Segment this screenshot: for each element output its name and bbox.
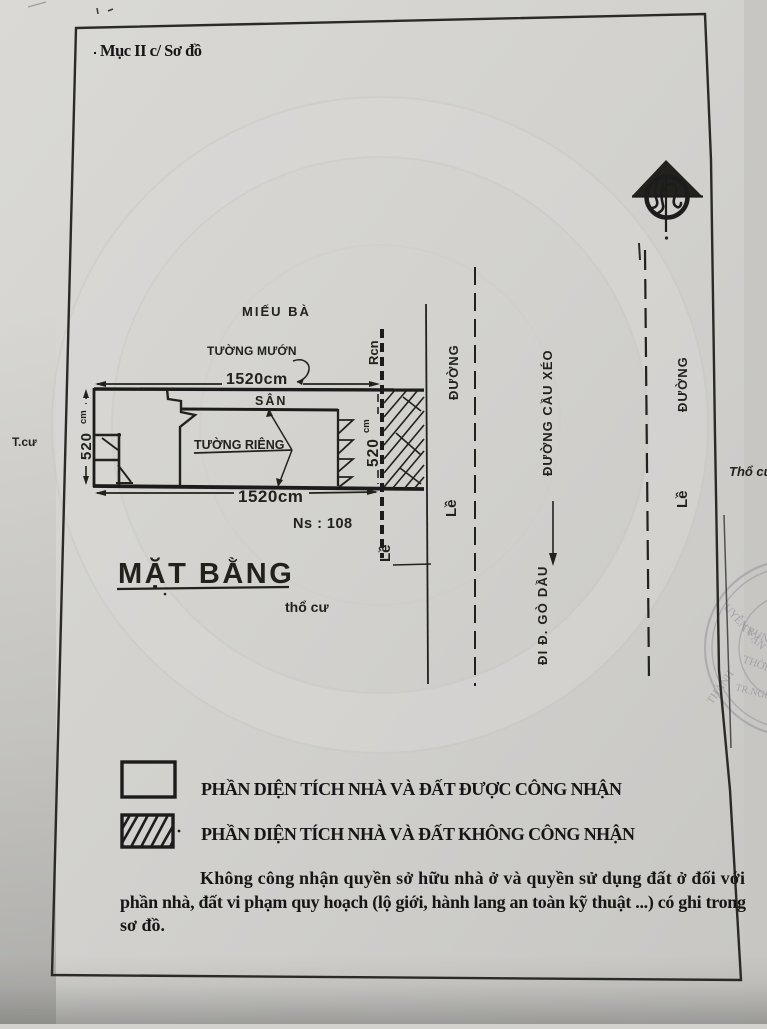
svg-text:Lề: Lề <box>674 490 691 508</box>
svg-text:sơ đồ.: sơ đồ. <box>120 915 165 935</box>
svg-text:Lề: Lề <box>443 499 460 517</box>
svg-text:ĐƯỜNG: ĐƯỜNG <box>675 356 690 412</box>
svg-text:ĐƯỜNG: ĐƯỜNG <box>446 344 461 400</box>
svg-text:1520cm: 1520cm <box>226 371 288 388</box>
svg-text:MIẾU BÀ: MIẾU BÀ <box>242 304 311 319</box>
svg-text:Rcn: Rcn <box>366 340 381 365</box>
svg-text:520: 520 <box>365 438 382 467</box>
svg-text:PHẦN DIỆN TÍCH NHÀ VÀ ĐẤT ĐƯỢC: PHẦN DIỆN TÍCH NHÀ VÀ ĐẤT ĐƯỢC CÔNG NHẬN <box>201 778 622 799</box>
svg-text:ĐƯỜNG CẦU XÉO: ĐƯỜNG CẦU XÉO <box>540 349 555 476</box>
svg-text:cm: cm <box>78 410 89 424</box>
svg-text:T.cư: T.cư <box>12 435 37 449</box>
svg-text:Ns : 108: Ns : 108 <box>293 516 353 532</box>
svg-text:cm: cm <box>361 419 372 433</box>
svg-text:SÂN: SÂN <box>255 393 287 408</box>
svg-text:thổ cư: thổ cư <box>285 599 329 615</box>
svg-text:Không công nhận quyền sở hữu n: Không công nhận quyền sở hữu nhà ở và qu… <box>200 868 745 888</box>
svg-text:Lề: Lề <box>377 544 394 562</box>
svg-text:Thổ cư: Thổ cư <box>729 464 767 479</box>
svg-text:TƯỜNG MƯỚN: TƯỜNG MƯỚN <box>207 343 297 358</box>
svg-text:1520cm: 1520cm <box>238 487 303 506</box>
svg-text:phần nhà, đất vi phạm quy hoạc: phần nhà, đất vi phạm quy hoạch (lộ giới… <box>120 892 746 913</box>
svg-text:ĐI Đ. GÒ DẦU: ĐI Đ. GÒ DẦU <box>535 565 550 665</box>
svg-text:MẶT BẰNG: MẶT BẰNG <box>118 556 294 590</box>
svg-text:520: 520 <box>78 432 95 460</box>
svg-text:PHẦN DIỆN TÍCH NHÀ VÀ ĐẤT KHÔN: PHẦN DIỆN TÍCH NHÀ VÀ ĐẤT KHÔNG CÔNG NHẬ… <box>201 823 635 844</box>
svg-text:Mục II c/ Sơ đồ: Mục II c/ Sơ đồ <box>100 41 202 60</box>
svg-text:TƯỜNG RIÊNG: TƯỜNG RIÊNG <box>194 437 284 452</box>
